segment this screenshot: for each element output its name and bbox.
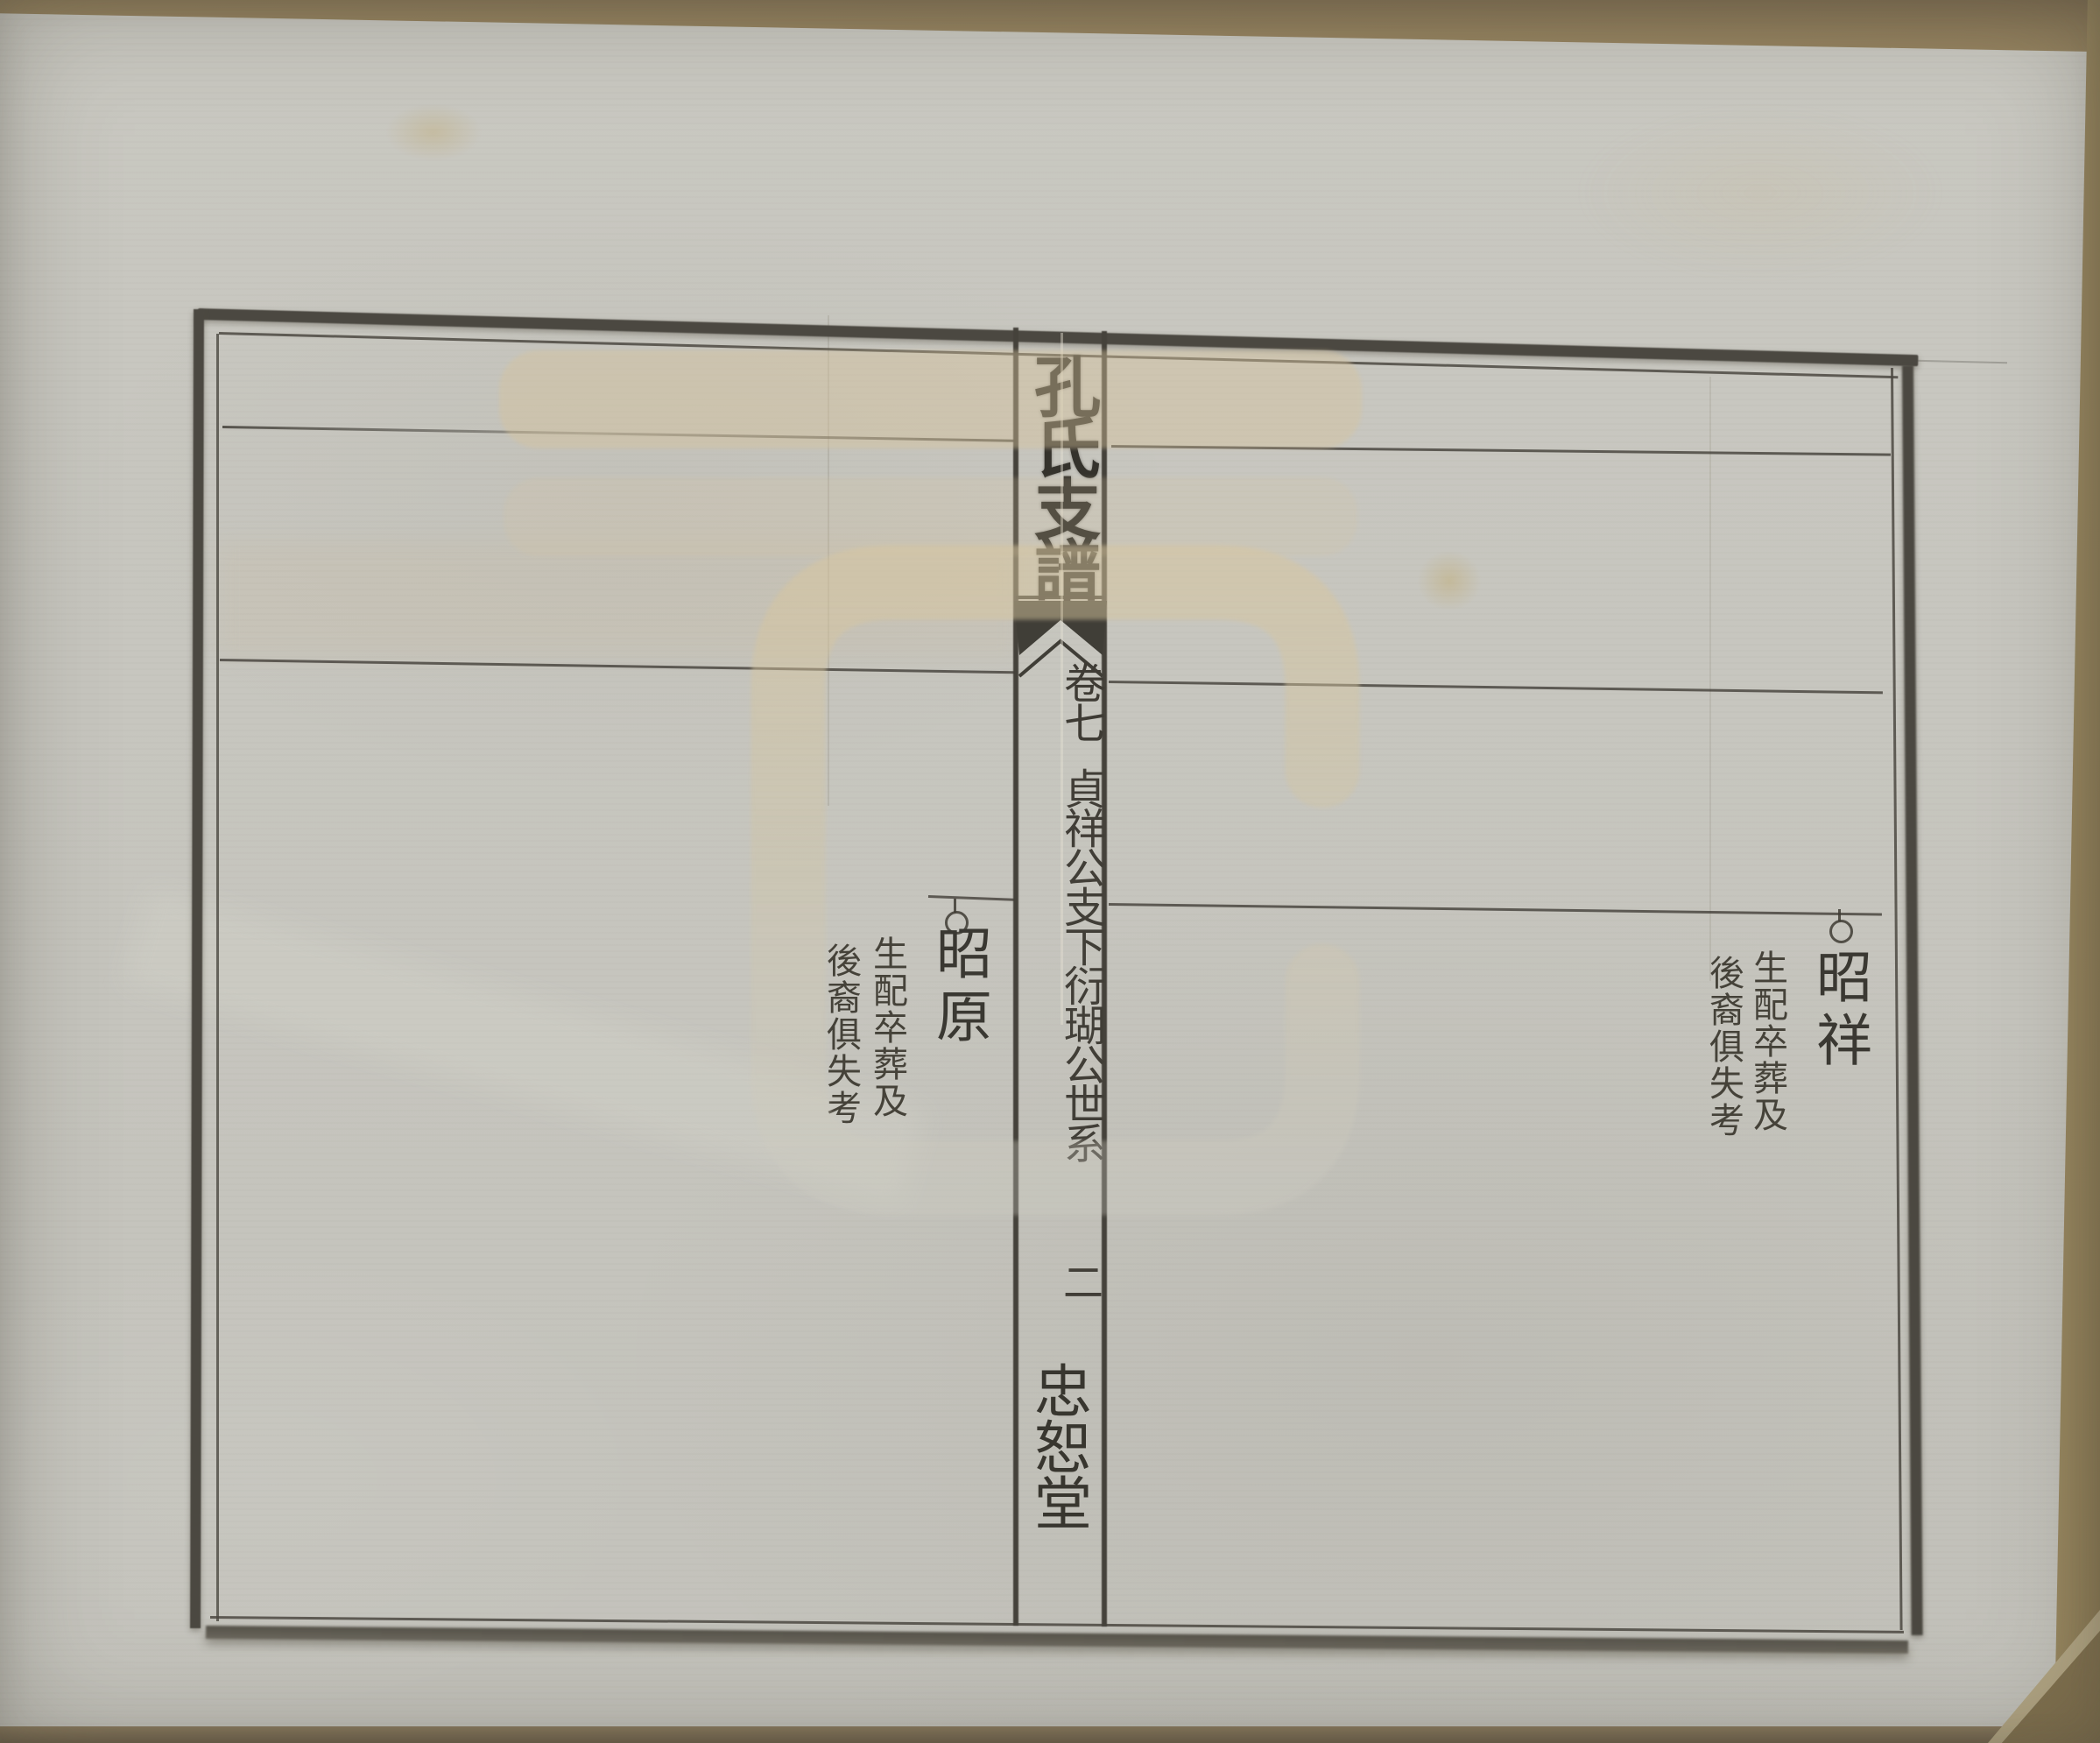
book-title: 孔氏支譜 [1018,352,1103,606]
entry-name: 昭原 [928,924,990,1060]
volume-label: 卷七 [1056,661,1103,752]
entry-note-column: 生配卒葬及 [1748,949,1786,1149]
section-title: 貞祥公支下衍瑚公世系 [1056,767,1103,1179]
entry-name: 昭祥 [1808,948,1870,1083]
descent-circle-icon [1829,920,1853,943]
entry-note-column: 生配卒葬及 [868,935,906,1135]
frame-left-border-thin [216,334,219,1621]
entry-note-column: 後裔俱失考 [1704,955,1743,1154]
hall-name: 忠恕堂 [1026,1361,1088,1543]
backing-board-bottom-edge [0,1726,2100,1743]
scanned-genealogy-page: 孔氏支譜 卷七 貞祥公支下衍瑚公世系 二 忠恕堂 昭原 生配卒葬及 後裔俱失考 … [0,0,2100,1743]
page-number: 二 [1056,1261,1103,1316]
entry-note-column: 後裔俱失考 [821,942,860,1142]
